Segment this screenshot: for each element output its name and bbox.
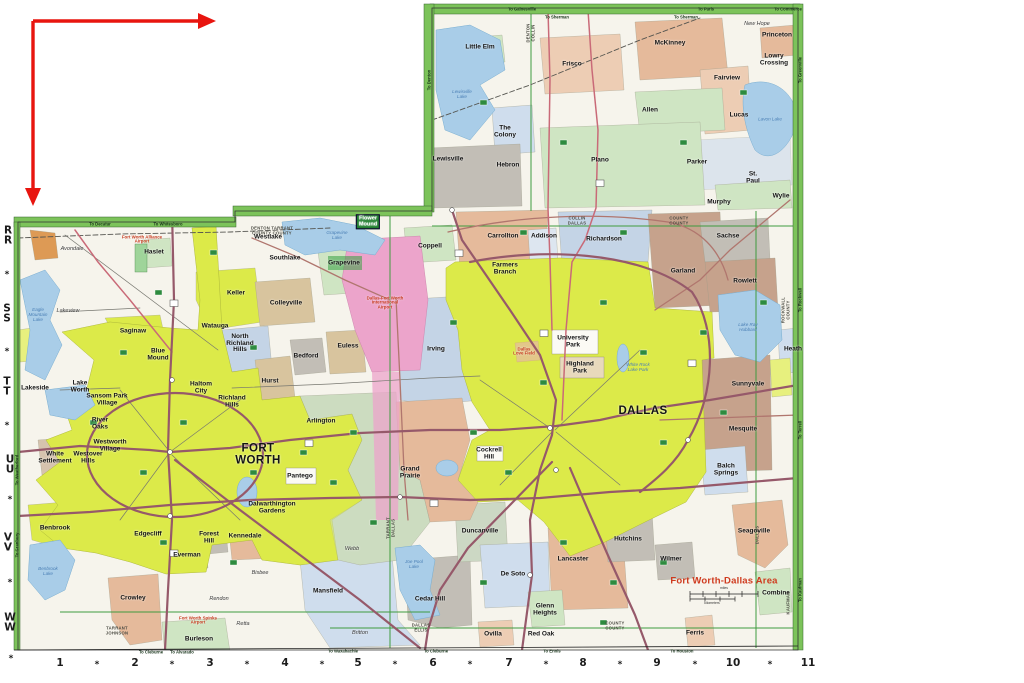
arrow-down-head xyxy=(25,188,41,206)
screenshot-root: Fort Worth-Dallas Area miles kilometers … xyxy=(0,0,1024,683)
annotation-overlay xyxy=(0,0,1024,683)
arrow-right-head xyxy=(198,13,216,29)
